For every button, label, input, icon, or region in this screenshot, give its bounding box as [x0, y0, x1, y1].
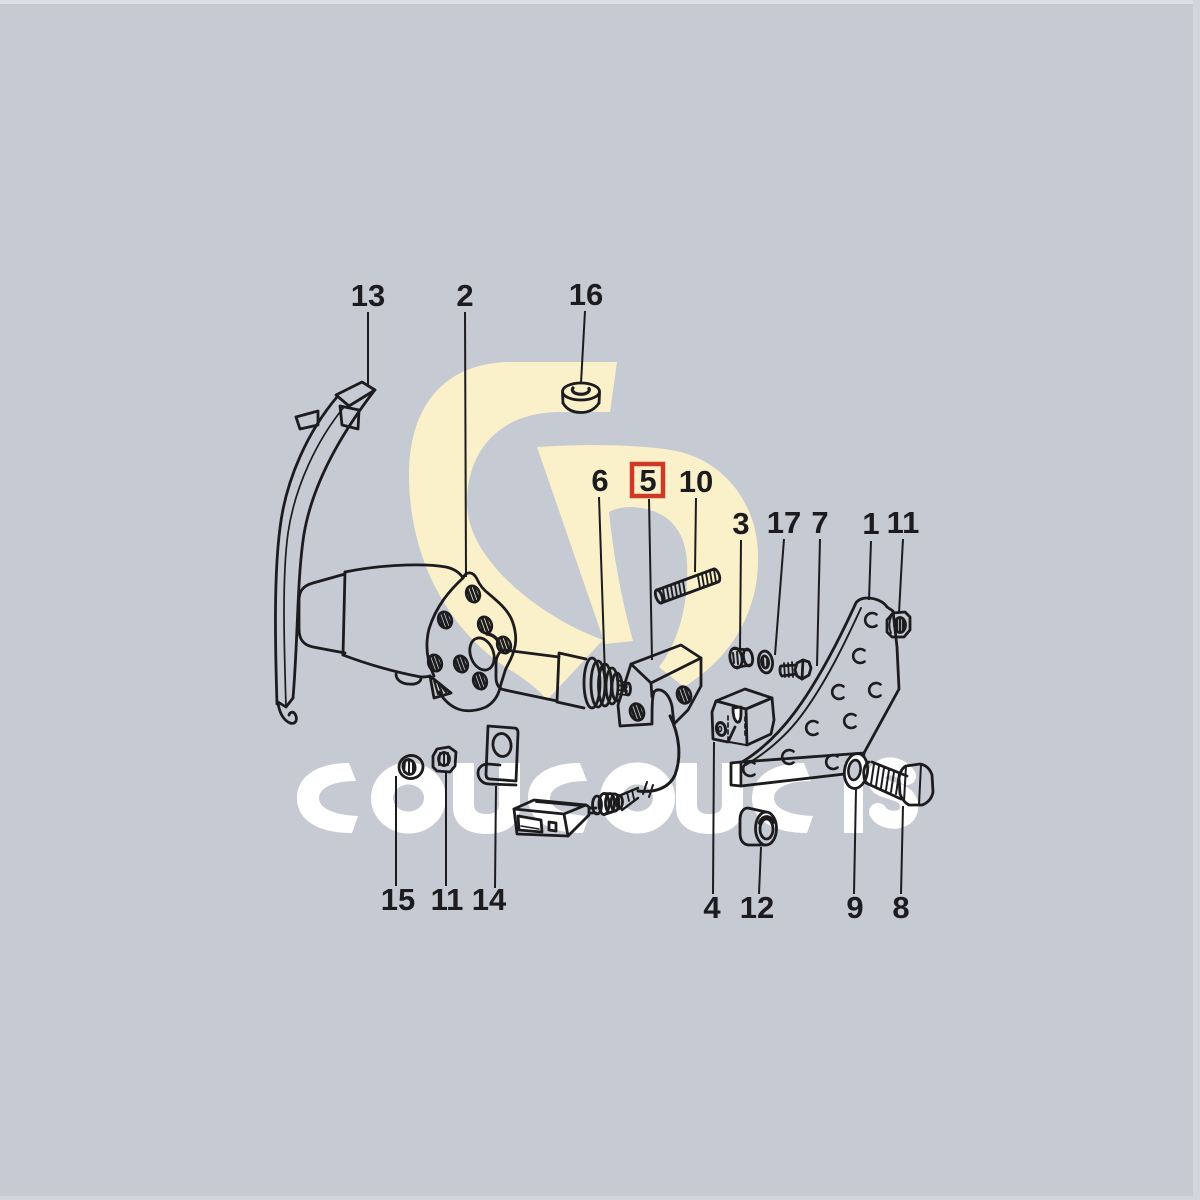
svg-text:1: 1	[862, 506, 879, 541]
svg-text:17: 17	[767, 505, 801, 540]
svg-text:15: 15	[381, 882, 415, 917]
svg-text:8: 8	[892, 890, 909, 925]
svg-text:3: 3	[732, 506, 749, 541]
svg-text:13: 13	[351, 278, 385, 313]
svg-text:14: 14	[472, 882, 507, 917]
svg-text:6: 6	[591, 463, 608, 498]
svg-text:7: 7	[811, 505, 828, 540]
svg-text:4: 4	[703, 890, 721, 925]
svg-text:9: 9	[846, 890, 863, 925]
svg-text:10: 10	[679, 464, 713, 499]
svg-text:12: 12	[740, 890, 774, 925]
svg-text:5: 5	[639, 463, 656, 498]
svg-text:11: 11	[431, 882, 464, 917]
svg-text:2: 2	[456, 278, 473, 313]
svg-text:16: 16	[569, 277, 603, 312]
svg-text:11: 11	[887, 505, 920, 540]
